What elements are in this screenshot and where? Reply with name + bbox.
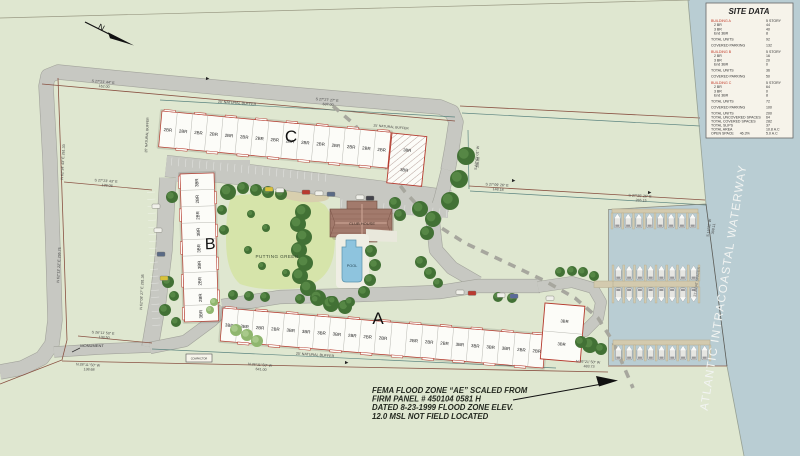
- svg-text:COVERED PARKING: COVERED PARKING: [711, 44, 745, 48]
- svg-text:3BR: 3BR: [196, 228, 201, 237]
- svg-text:MONUMENT: MONUMENT: [80, 343, 104, 348]
- svg-text:B: B: [205, 236, 216, 253]
- svg-text:3BR: 3BR: [302, 329, 311, 335]
- svg-text:3BR: 3BR: [286, 328, 295, 334]
- svg-text:2BR: 2BR: [348, 333, 357, 339]
- svg-text:139.08: 139.08: [101, 183, 112, 188]
- svg-text:2BR: 2BR: [197, 277, 202, 286]
- svg-text:3BR: 3BR: [400, 167, 409, 173]
- svg-text:3BR: 3BR: [317, 330, 326, 336]
- svg-text:2BR: 2BR: [362, 145, 371, 151]
- svg-text:2BR: 2BR: [225, 133, 234, 139]
- svg-text:2BR: 2BR: [440, 340, 449, 346]
- svg-text:148.18: 148.18: [492, 187, 503, 192]
- svg-text:2BR: 2BR: [194, 130, 203, 136]
- svg-text:C: C: [285, 127, 297, 146]
- svg-text:TOTAL UNITS: TOTAL UNITS: [711, 100, 734, 104]
- svg-text:138.50: 138.50: [98, 335, 109, 340]
- svg-text:COMPACTOR: COMPACTOR: [191, 357, 208, 361]
- svg-text:3BR: 3BR: [198, 310, 203, 319]
- svg-text:CLUB HOUSE: CLUB HOUSE: [349, 221, 375, 226]
- svg-text:8: 8: [766, 94, 768, 98]
- svg-text:138.68: 138.68: [83, 367, 94, 372]
- svg-text:50: 50: [766, 75, 770, 79]
- svg-text:2BR: 2BR: [198, 293, 203, 302]
- svg-text:2BR: 2BR: [195, 195, 200, 204]
- svg-text:3BR: 3BR: [471, 343, 480, 349]
- svg-text:COVERED PARKING: COVERED PARKING: [711, 106, 745, 110]
- svg-text:483.73: 483.73: [583, 364, 594, 369]
- svg-text:100: 100: [766, 106, 772, 110]
- svg-text:A: A: [372, 309, 384, 328]
- svg-text:2BR: 2BR: [255, 136, 264, 142]
- svg-text:2BR: 2BR: [347, 144, 356, 150]
- svg-text:0: 0: [766, 63, 768, 67]
- svg-text:2BR: 2BR: [379, 335, 388, 341]
- svg-text:3BR: 3BR: [455, 342, 464, 348]
- svg-text:265.15: 265.15: [635, 198, 646, 203]
- svg-text:3BR: 3BR: [194, 178, 199, 187]
- svg-text:92: 92: [766, 38, 770, 42]
- svg-text:POOL: POOL: [347, 264, 358, 268]
- svg-text:2BR: 2BR: [256, 325, 265, 331]
- svg-text:72: 72: [766, 100, 770, 104]
- svg-text:TOTAL UNITS: TOTAL UNITS: [711, 38, 734, 42]
- svg-text:2BR: 2BR: [377, 147, 386, 153]
- svg-text:3BR: 3BR: [197, 261, 202, 270]
- svg-text:2BR: 2BR: [316, 141, 325, 147]
- svg-text:OPEN SPACE 46.3%: OPEN SPACE 46.3%: [711, 132, 751, 136]
- svg-text:2BR: 2BR: [163, 127, 172, 133]
- svg-text:3BR: 3BR: [403, 147, 412, 153]
- svg-text:2BR: 2BR: [409, 338, 418, 344]
- svg-text:2BR: 2BR: [209, 131, 218, 137]
- svg-text:End 3BR: End 3BR: [711, 94, 729, 98]
- svg-text:36: 36: [766, 69, 770, 73]
- svg-text:5.0 A.C: 5.0 A.C: [766, 132, 778, 136]
- svg-text:132: 132: [766, 44, 772, 48]
- svg-text:2BR: 2BR: [517, 347, 526, 353]
- svg-text:8: 8: [766, 32, 768, 36]
- svg-text:3BR: 3BR: [486, 344, 495, 350]
- svg-text:COVERED PARKING: COVERED PARKING: [711, 75, 745, 79]
- svg-text:2BR: 2BR: [271, 326, 280, 332]
- svg-text:2BR: 2BR: [425, 339, 434, 345]
- svg-text:3BR: 3BR: [560, 318, 569, 324]
- svg-text:2BR: 2BR: [195, 211, 200, 220]
- svg-text:2BR: 2BR: [240, 134, 249, 140]
- svg-text:2BR: 2BR: [331, 143, 340, 149]
- svg-text:2BR: 2BR: [363, 334, 372, 340]
- svg-text:End 3BR: End 3BR: [711, 32, 729, 36]
- svg-text:2BR: 2BR: [532, 348, 541, 354]
- svg-text:3BR: 3BR: [332, 331, 341, 337]
- svg-text:3BR: 3BR: [557, 341, 566, 347]
- svg-text:PUTTING GREEN: PUTTING GREEN: [256, 254, 299, 259]
- svg-text:TOTAL UNITS: TOTAL UNITS: [711, 69, 734, 73]
- svg-text:2BR: 2BR: [270, 137, 279, 143]
- svg-text:2BR: 2BR: [179, 128, 188, 134]
- svg-text:641.00: 641.00: [255, 367, 266, 372]
- svg-text:3BR: 3BR: [502, 346, 511, 352]
- svg-text:2BR: 2BR: [301, 140, 310, 146]
- svg-text:End 3BR: End 3BR: [711, 63, 729, 67]
- svg-text:3BR: 3BR: [196, 244, 201, 253]
- svg-text:12.0 MSL NOT FIELD LOCATED: 12.0 MSL NOT FIELD LOCATED: [372, 412, 489, 421]
- svg-text:SITE DATA: SITE DATA: [728, 7, 769, 16]
